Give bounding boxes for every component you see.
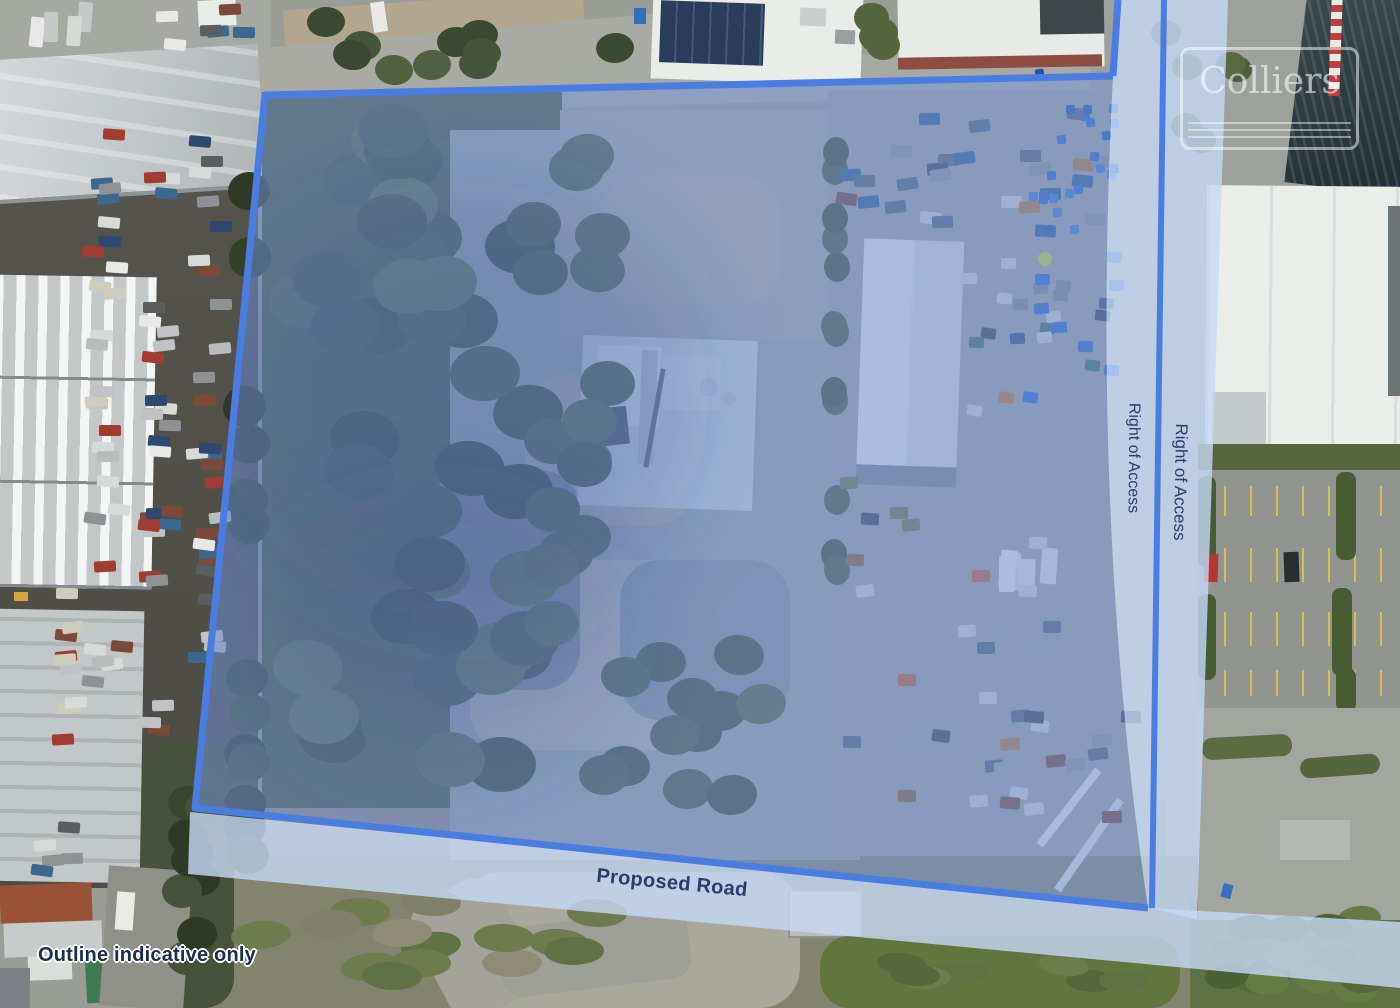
photo-texture-blob [579, 754, 630, 795]
photo-texture-blob [1020, 150, 1041, 162]
disclaimer-text: Outline indicative only [38, 944, 256, 967]
photo-texture-blob [1110, 118, 1120, 128]
photo-texture-blob [1121, 710, 1142, 723]
photo-texture-blob [145, 395, 167, 406]
solar-panel-array [659, 0, 765, 66]
photo-texture-blob [1035, 274, 1050, 285]
photo-texture-blob [99, 181, 122, 194]
photo-texture-blob [898, 790, 916, 802]
photo-texture-blob [1045, 754, 1066, 768]
photo-texture-blob [1036, 331, 1052, 343]
rooftop-unit [800, 8, 827, 27]
photo-texture-blob [843, 736, 861, 748]
warehouse-roof-top-left [0, 44, 266, 204]
photo-texture-blob [188, 652, 210, 663]
photo-texture-blob [1106, 252, 1122, 264]
photo-texture-blob [1109, 104, 1118, 113]
photo-texture-blob [1084, 359, 1100, 372]
photo-texture-blob [65, 696, 88, 709]
photo-texture-blob [205, 476, 228, 489]
photo-texture-blob [103, 129, 126, 142]
photo-texture-blob [885, 200, 907, 214]
tank [700, 378, 718, 396]
photo-texture-blob [219, 3, 242, 15]
parking-lines [1200, 548, 1400, 582]
photo-texture-blob [148, 446, 171, 459]
parking-lines [1200, 670, 1400, 696]
photo-texture-blob [958, 624, 977, 637]
photo-texture-blob [1065, 189, 1075, 199]
concrete-pad [1280, 820, 1350, 860]
photo-texture-blob [1052, 321, 1068, 333]
photo-texture-blob [906, 733, 925, 746]
yellow-container [1038, 252, 1052, 266]
photo-texture-blob [193, 371, 215, 383]
photo-texture-blob [1095, 163, 1105, 173]
photo-texture-blob [1010, 332, 1025, 344]
photo-texture-blob [1049, 194, 1058, 203]
photo-texture-blob [1073, 185, 1083, 195]
photo-texture-blob [1065, 758, 1086, 772]
parking-lines [1200, 486, 1400, 516]
photo-texture-blob [209, 342, 232, 355]
forklift [14, 592, 28, 601]
dark-car [1283, 552, 1299, 583]
photo-texture-blob [891, 144, 913, 158]
photo-texture-blob [86, 338, 109, 351]
photo-texture-blob [998, 549, 1018, 586]
photo-texture-blob [1032, 642, 1051, 655]
photo-texture-blob [92, 386, 114, 398]
photo-texture-blob [357, 193, 428, 249]
photo-texture-blob [898, 674, 916, 686]
photo-texture-blob [932, 216, 953, 229]
photo-texture-blob [66, 16, 82, 47]
photo-texture-blob [1057, 135, 1067, 145]
photo-texture-blob [1039, 548, 1058, 585]
photo-texture-blob [201, 459, 223, 470]
photo-texture-blob [159, 420, 181, 432]
photo-texture-blob [1056, 279, 1072, 291]
long-shed-roof [856, 238, 965, 487]
photo-texture-blob [1028, 536, 1047, 549]
photo-texture-blob [1033, 302, 1049, 314]
photo-texture-blob [1013, 299, 1029, 311]
photo-texture-blob [188, 255, 210, 267]
photo-texture-blob [51, 734, 74, 746]
photo-texture-blob [989, 627, 1007, 639]
hedge-island [1336, 472, 1356, 560]
right-of-access-label-outer: Right of Access [1169, 423, 1191, 541]
photo-texture-blob [189, 166, 212, 179]
photo-texture-blob [979, 691, 997, 703]
photo-texture-blob [189, 135, 212, 148]
photo-texture-blob [196, 195, 219, 208]
hedge-island [1332, 588, 1352, 676]
photo-texture-blob [839, 476, 858, 489]
photo-texture-blob [1094, 309, 1110, 322]
photo-texture-blob [210, 220, 232, 231]
photo-texture-blob [43, 11, 58, 41]
photo-texture-blob [996, 292, 1012, 304]
photo-texture-blob [919, 113, 940, 125]
roof-dark-section [1040, 0, 1105, 35]
photo-texture-blob [1000, 796, 1021, 810]
photo-texture-blob [141, 409, 163, 420]
photo-texture-blob [1102, 131, 1112, 141]
right-of-access-label-inner: Right of Access [1124, 403, 1143, 513]
photo-texture-blob [82, 245, 104, 257]
photo-texture-blob [164, 38, 187, 51]
photo-texture-blob [861, 513, 880, 526]
photo-texture-blob [156, 11, 178, 23]
photo-texture-blob [1108, 280, 1124, 292]
photo-texture-blob [1044, 225, 1054, 235]
photo-texture-blob [34, 839, 57, 852]
colliers-logo: Colliers [1180, 47, 1359, 150]
photo-texture-blob [953, 151, 975, 165]
photo-texture-blob [896, 176, 918, 191]
photo-texture-blob [61, 853, 83, 865]
photo-texture-blob [152, 699, 174, 711]
awning [1212, 392, 1266, 446]
photo-texture-blob [1078, 340, 1093, 352]
aerial-photo [0, 0, 1400, 1008]
photo-texture-blob [1085, 118, 1095, 128]
tank [722, 392, 736, 406]
red-car [1204, 554, 1219, 582]
rooftop-unit [835, 30, 855, 45]
blue-bin [634, 8, 646, 24]
photo-texture-blob [96, 475, 119, 488]
photo-texture-blob [998, 391, 1014, 404]
shack-roof [0, 882, 93, 923]
photo-texture-blob [1024, 710, 1045, 724]
photo-texture-blob [962, 273, 977, 284]
photo-texture-blob [198, 443, 221, 455]
warehouse-roof-mid-left [0, 275, 157, 590]
photo-texture-blob [143, 302, 165, 313]
photo-texture-blob [84, 643, 107, 656]
photo-texture-blob [56, 587, 78, 598]
photo-texture-blob [98, 216, 121, 229]
photo-texture-blob [481, 949, 541, 977]
photo-texture-blob [1066, 105, 1075, 114]
photo-texture-blob [161, 505, 183, 517]
colliers-wordmark: Colliers [1199, 64, 1340, 100]
shack-roof [0, 968, 30, 1008]
photo-texture-blob [201, 155, 223, 166]
photo-texture-blob [1043, 621, 1061, 633]
photo-texture-blob [200, 24, 222, 36]
photo-texture-blob [857, 195, 879, 209]
photo-texture-blob [233, 27, 255, 38]
photo-texture-blob [1087, 747, 1108, 761]
photo-texture-blob [1103, 364, 1119, 376]
photo-texture-blob [1019, 584, 1038, 597]
photo-texture-blob [198, 265, 220, 277]
photo-texture-blob [1039, 191, 1049, 201]
photo-texture-blob [96, 451, 118, 463]
photo-texture-blob [835, 191, 857, 206]
photo-texture-blob [99, 235, 122, 247]
photo-texture-blob [1083, 104, 1093, 114]
photo-texture-blob [890, 506, 908, 518]
photo-texture-blob [1029, 192, 1038, 201]
photo-texture-blob [977, 642, 995, 654]
photo-texture-blob [94, 560, 117, 572]
photo-texture-blob [1046, 171, 1055, 180]
photo-texture-blob [194, 395, 216, 406]
hedge-row [1201, 734, 1292, 761]
photo-texture-blob [972, 569, 990, 581]
photo-texture-blob [1089, 152, 1099, 162]
photo-texture-blob [144, 172, 166, 184]
photo-texture-blob [107, 503, 130, 516]
concrete-pad-bottom [788, 890, 862, 938]
photo-texture-blob [1084, 213, 1105, 226]
photo-texture-blob [146, 574, 169, 586]
photo-texture-blob [969, 337, 984, 349]
hedge-island [1336, 668, 1356, 712]
hedge-strip [1198, 444, 1400, 472]
photo-texture-blob [966, 404, 982, 417]
photo-texture-blob [210, 299, 232, 310]
photo-texture-blob [200, 630, 223, 643]
photo-texture-blob [846, 553, 865, 566]
photo-texture-blob [1001, 258, 1016, 269]
photo-texture-blob [856, 584, 875, 598]
photo-texture-blob [1024, 802, 1045, 817]
photo-texture-blob [1110, 164, 1119, 173]
hedge-island [1198, 594, 1216, 680]
photo-texture-blob [197, 593, 220, 606]
photo-texture-blob [99, 424, 121, 435]
photo-texture-blob [155, 187, 178, 200]
photo-texture-blob [1023, 391, 1039, 404]
photo-texture-blob [557, 442, 612, 487]
photo-texture-blob [57, 821, 80, 834]
photo-texture-blob [854, 175, 875, 187]
photo-texture-blob [54, 653, 77, 666]
photo-texture-blob [1091, 733, 1112, 747]
aerial-site-plan: Right of Access Right of Access Proposed… [0, 0, 1400, 1008]
photo-texture-blob [993, 761, 1012, 774]
photo-texture-blob [1019, 201, 1041, 214]
roof-vents [1388, 206, 1400, 396]
photo-texture-blob [1035, 69, 1045, 79]
photo-texture-blob [1102, 810, 1122, 822]
photo-texture-blob [901, 519, 920, 533]
photo-texture-blob [1053, 207, 1063, 217]
parking-lines [1200, 612, 1400, 646]
photo-texture-blob [105, 261, 128, 273]
photo-texture-blob [139, 716, 161, 728]
photo-texture-blob [1099, 298, 1115, 310]
white-truck [115, 891, 136, 930]
photo-texture-blob [138, 519, 161, 532]
photo-texture-blob [111, 639, 134, 652]
photo-texture-blob [931, 729, 950, 743]
photo-texture-blob [969, 795, 988, 809]
photo-texture-blob [968, 119, 990, 133]
photo-texture-blob [1053, 290, 1068, 301]
photo-texture-blob [1070, 225, 1080, 235]
